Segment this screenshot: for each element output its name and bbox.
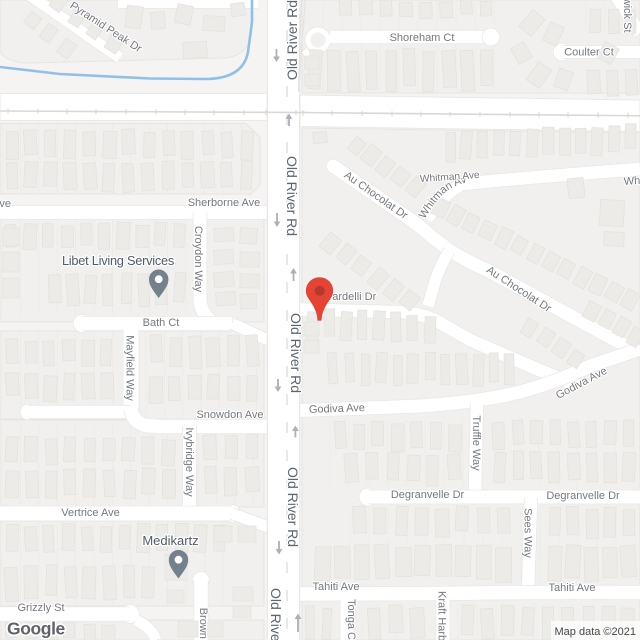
svg-text:Tahiti Ave: Tahiti Ave bbox=[549, 582, 596, 594]
svg-text:Sherborne Ave: Sherborne Ave bbox=[188, 197, 261, 209]
svg-text:Old River Rd: Old River Rd bbox=[288, 313, 304, 393]
svg-text:Grizzly St: Grizzly St bbox=[17, 602, 64, 614]
svg-text:Libet Living Services: Libet Living Services bbox=[62, 253, 174, 268]
svg-text:Old River Rd: Old River Rd bbox=[285, 467, 301, 547]
svg-text:Tahiti Ave: Tahiti Ave bbox=[313, 581, 360, 593]
svg-text:Kraft Harbor: Kraft Harbor bbox=[436, 591, 448, 640]
svg-text:Coulter Ct: Coulter Ct bbox=[564, 47, 614, 59]
svg-text:Croydon Way: Croydon Way bbox=[192, 226, 204, 293]
svg-text:Vertrice Ave: Vertrice Ave bbox=[61, 507, 120, 519]
svg-text:Mayfield Way: Mayfield Way bbox=[124, 335, 136, 401]
svg-text:Medikartz: Medikartz bbox=[142, 533, 198, 548]
svg-text:Brown St: Brown St bbox=[197, 608, 209, 640]
svg-text:Bath Ct: Bath Ct bbox=[143, 317, 180, 329]
svg-text:Truffle Way: Truffle Way bbox=[470, 415, 482, 471]
svg-text:Renwick St: Renwick St bbox=[621, 0, 633, 33]
svg-text:Map data ©2021: Map data ©2021 bbox=[555, 626, 637, 638]
svg-text:Old River Rd: Old River Rd bbox=[268, 588, 284, 640]
svg-text:Degranvelle Dr: Degranvelle Dr bbox=[546, 490, 620, 502]
svg-text:Ivybridge Way: Ivybridge Way bbox=[183, 427, 195, 497]
svg-text:Degranvelle Dr: Degranvelle Dr bbox=[391, 489, 465, 501]
svg-text:Godiva Ave: Godiva Ave bbox=[309, 402, 365, 416]
svg-text:Old River Rd: Old River Rd bbox=[284, 0, 300, 80]
svg-text:Sees Way: Sees Way bbox=[522, 508, 534, 558]
svg-text:Tonga Ct: Tonga Ct bbox=[345, 599, 357, 640]
svg-text:Google: Google bbox=[7, 619, 66, 639]
svg-text:Sherborne Ave: Sherborne Ave bbox=[0, 198, 11, 210]
svg-text:Snowdon Ave: Snowdon Ave bbox=[196, 409, 263, 421]
svg-text:Shoreham Ct: Shoreham Ct bbox=[390, 32, 455, 44]
svg-text:Old River Rd: Old River Rd bbox=[284, 156, 300, 236]
